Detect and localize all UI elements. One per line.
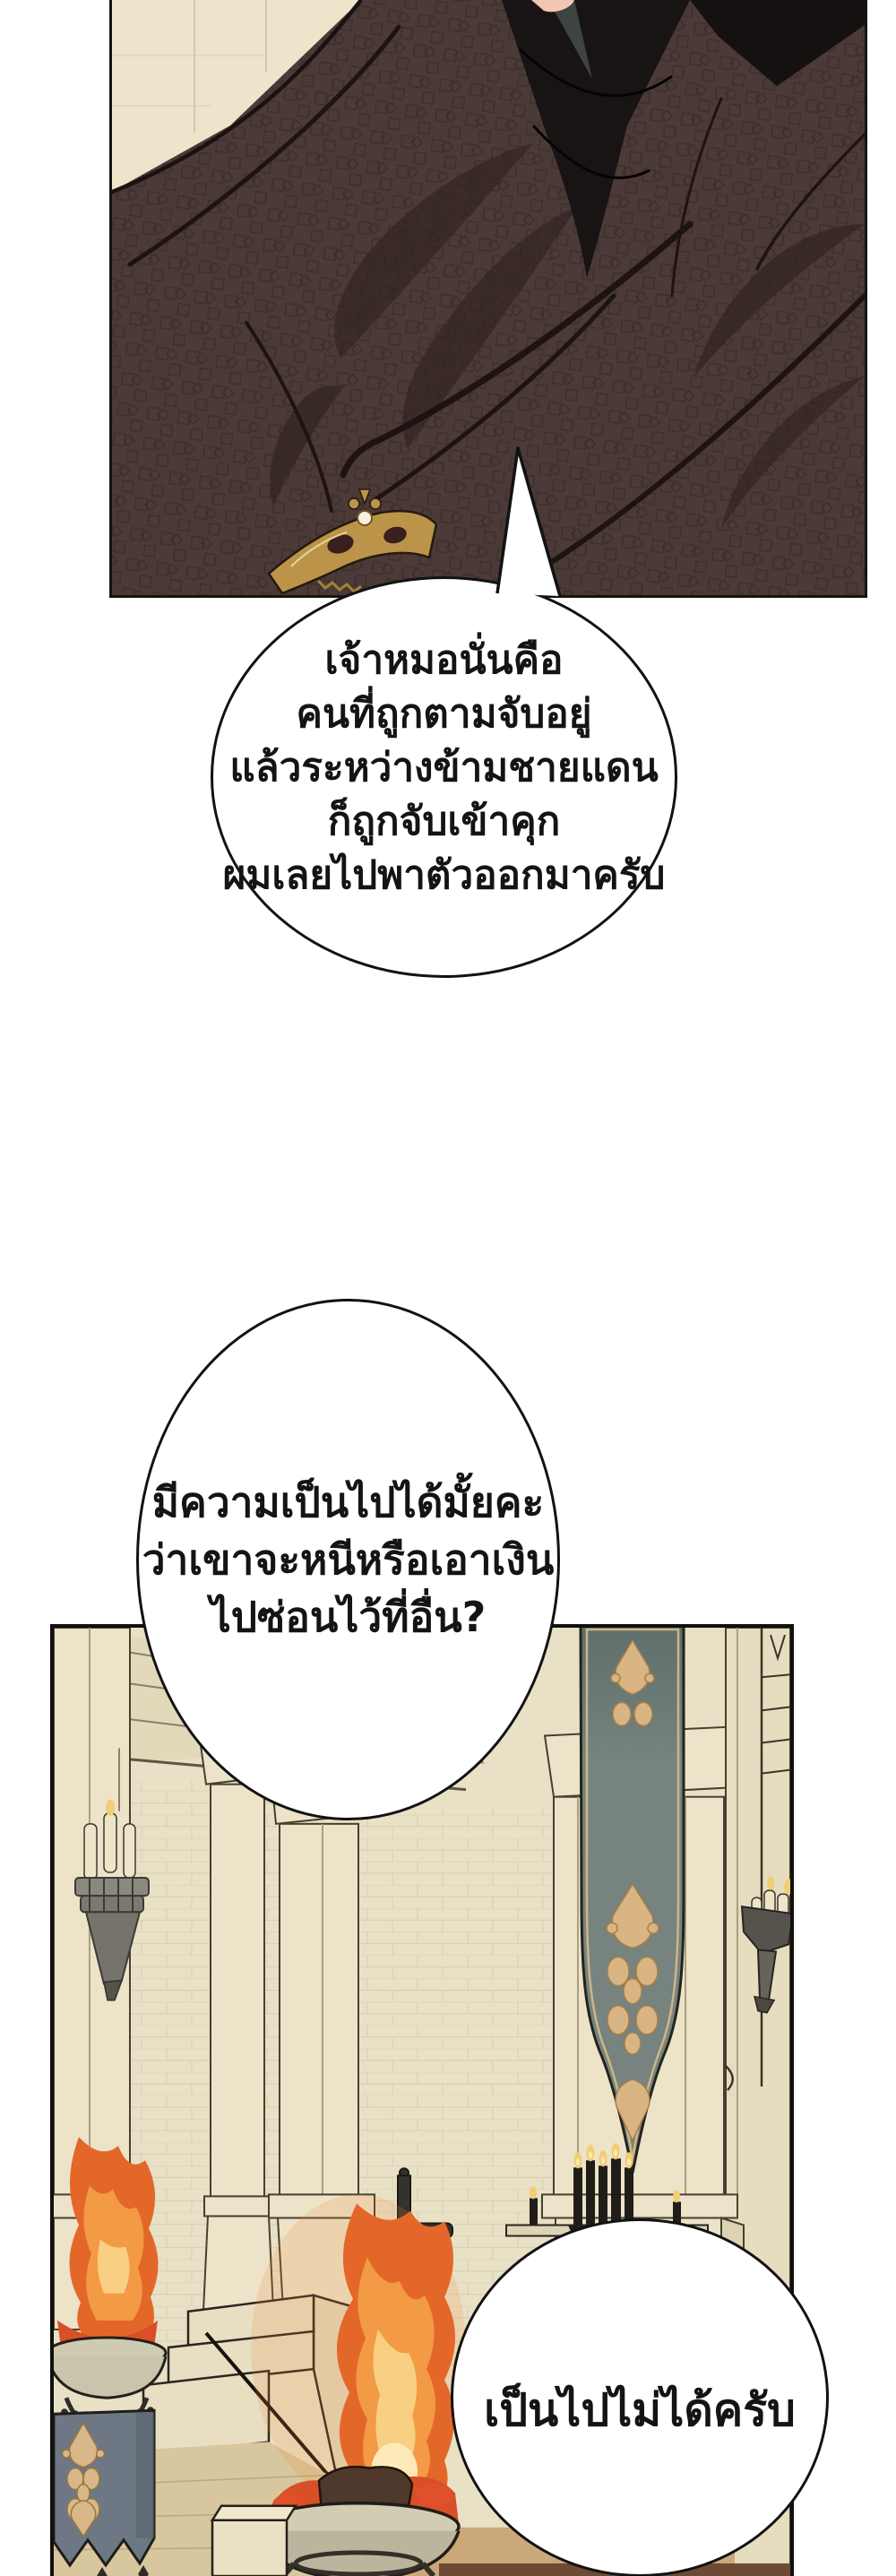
bubble-text-line: เป็นไปไม่ได้ครับ <box>484 2382 796 2439</box>
bubble-text-line: ว่าเขาจะหนีหรือเอาเงิน <box>142 1531 555 1588</box>
bubble-text-line: แล้วระหว่างข้ามชายแดน <box>229 741 658 795</box>
speech-bubble-middle: มีความเป็นไปได้มั้ยคะ ว่าเขาจะหนีหรือเอา… <box>136 1299 560 1820</box>
speech-bubble-tail <box>488 441 569 598</box>
bubble-text-line: ก็ถูกจับเข้าคุก <box>328 795 561 849</box>
bubble-text-line: ไปซ่อนไว้ที่อื่น? <box>211 1588 487 1646</box>
speech-bubble-top: เจ้าหมอนั่นคือ คนที่ถูกตามจับอยู่ แล้วระ… <box>211 576 677 978</box>
speech-bubble-bottom: เป็นไปไม่ได้ครับ <box>451 2218 829 2576</box>
comic-page: เจ้าหมอนั่นคือ คนที่ถูกตามจับอยู่ แล้วระ… <box>0 0 896 2576</box>
bubble-text-line: เจ้าหมอนั่นคือ <box>325 634 564 687</box>
bubble-text-line: คนที่ถูกตามจับอยู่ <box>297 687 592 741</box>
bubble-text-line: ผมเลยไปพาตัวออกมาครับ <box>223 849 666 903</box>
brooch-pearl <box>358 511 372 525</box>
bottom-left-banner <box>54 2410 154 2576</box>
pedestal <box>212 2506 296 2576</box>
bubble-text-line: มีความเป็นไปได้มั้ยคะ <box>152 1474 545 1531</box>
